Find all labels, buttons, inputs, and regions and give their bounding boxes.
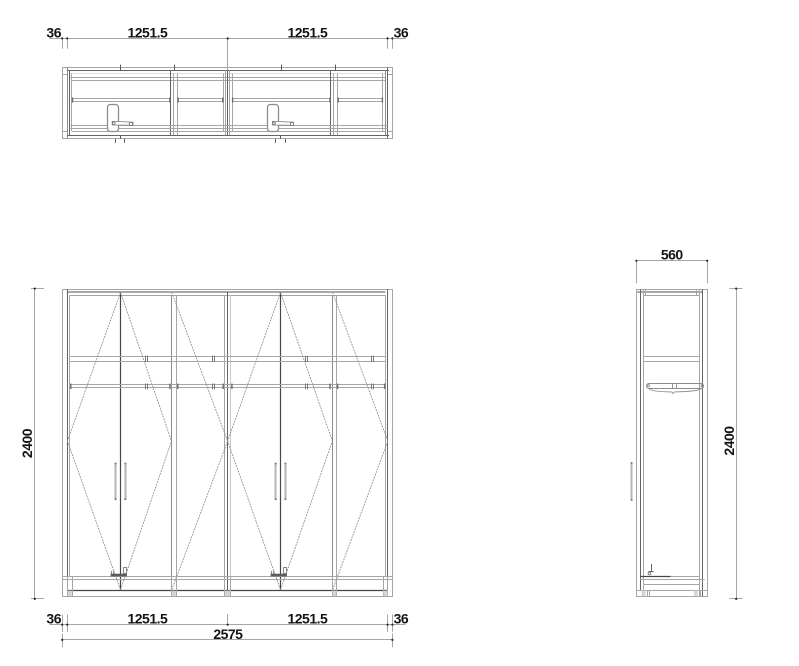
svg-text:2575: 2575 bbox=[213, 626, 243, 642]
svg-text:36: 36 bbox=[394, 24, 409, 40]
svg-text:1251.5: 1251.5 bbox=[127, 24, 168, 40]
svg-text:2400: 2400 bbox=[19, 428, 35, 458]
svg-text:1251.5: 1251.5 bbox=[287, 610, 328, 626]
svg-text:2400: 2400 bbox=[721, 426, 737, 456]
svg-text:560: 560 bbox=[661, 246, 684, 262]
svg-text:1251.5: 1251.5 bbox=[287, 24, 328, 40]
svg-text:36: 36 bbox=[46, 610, 61, 626]
svg-text:1251.5: 1251.5 bbox=[127, 610, 168, 626]
svg-text:36: 36 bbox=[46, 24, 61, 40]
svg-text:36: 36 bbox=[394, 610, 409, 626]
